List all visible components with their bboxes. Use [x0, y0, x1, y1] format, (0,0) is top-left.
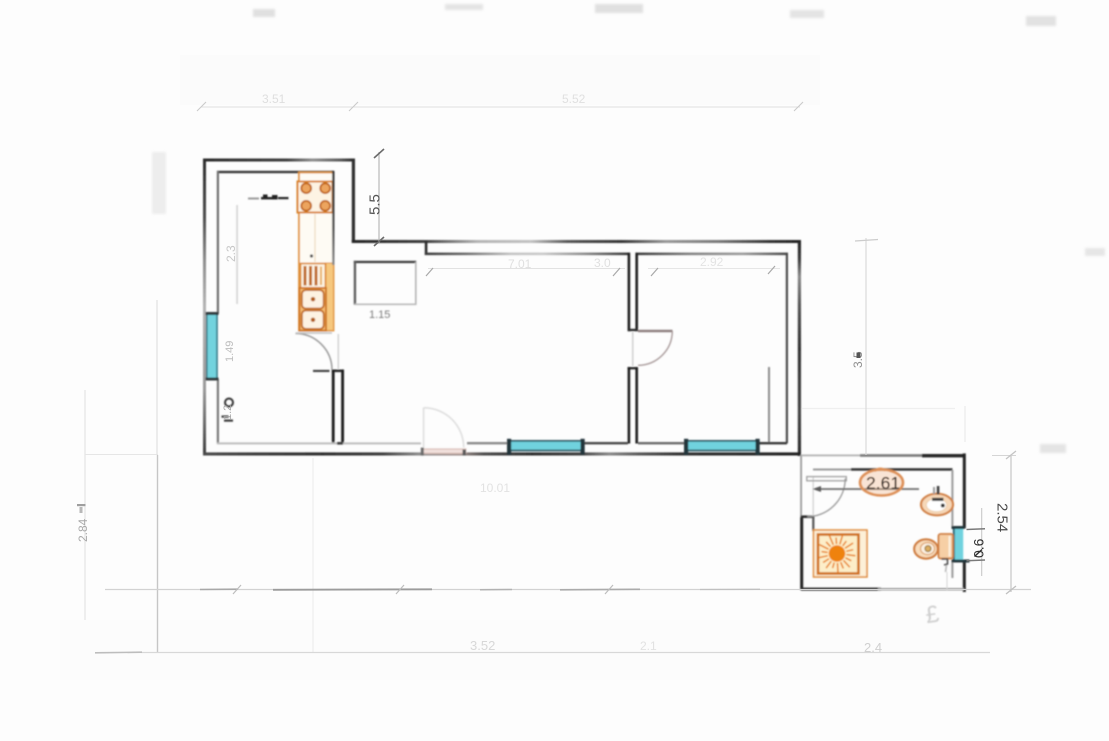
- svg-text:0.6: 0.6: [971, 538, 987, 558]
- svg-text:3.52: 3.52: [470, 638, 495, 653]
- svg-text:2.92: 2.92: [700, 255, 724, 269]
- svg-text:3.51: 3.51: [262, 92, 286, 106]
- svg-text:2.3: 2.3: [224, 245, 238, 262]
- svg-text:10.01: 10.01: [480, 481, 510, 495]
- svg-text:2.61: 2.61: [866, 473, 900, 493]
- svg-text:3.0: 3.0: [594, 256, 611, 270]
- svg-text:1.2: 1.2: [222, 405, 234, 420]
- svg-text:5.5: 5.5: [367, 194, 384, 215]
- svg-text:1.49: 1.49: [224, 341, 236, 362]
- svg-text:2.84: 2.84: [76, 518, 90, 542]
- svg-text:1.15: 1.15: [369, 309, 390, 321]
- svg-text:2.4: 2.4: [864, 640, 882, 655]
- svg-text:2.54: 2.54: [994, 503, 1011, 532]
- svg-text:5.52: 5.52: [562, 92, 586, 106]
- svg-text:2.1: 2.1: [640, 639, 657, 653]
